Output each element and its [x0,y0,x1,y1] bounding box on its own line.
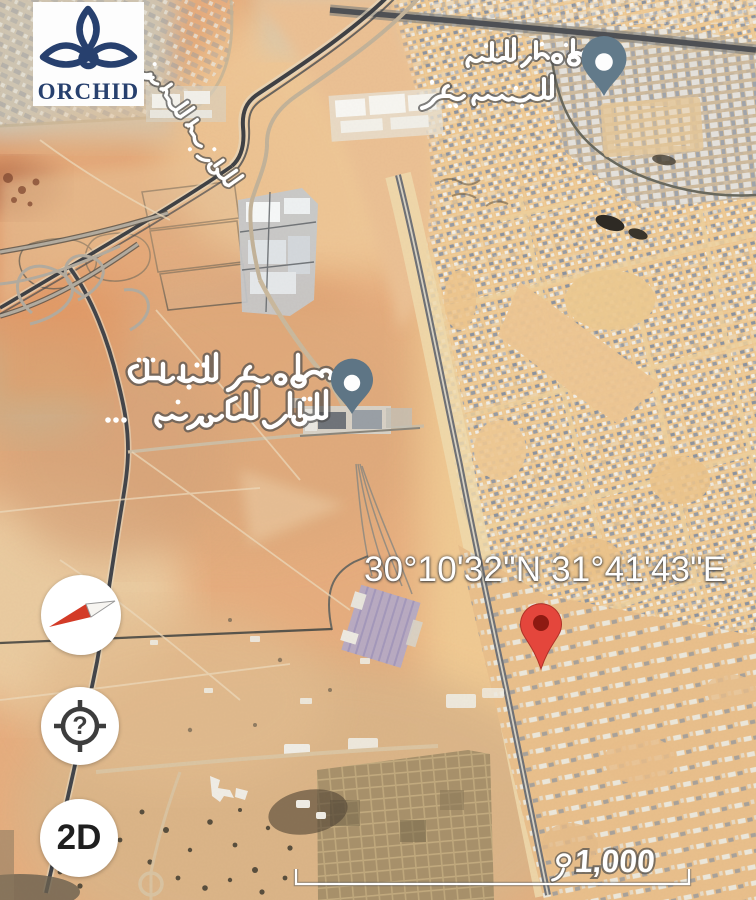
svg-text:1,000: 1,000 [574,843,657,879]
svg-text:?: ? [72,712,87,740]
svg-text:ORCHID: ORCHID [38,79,140,104]
